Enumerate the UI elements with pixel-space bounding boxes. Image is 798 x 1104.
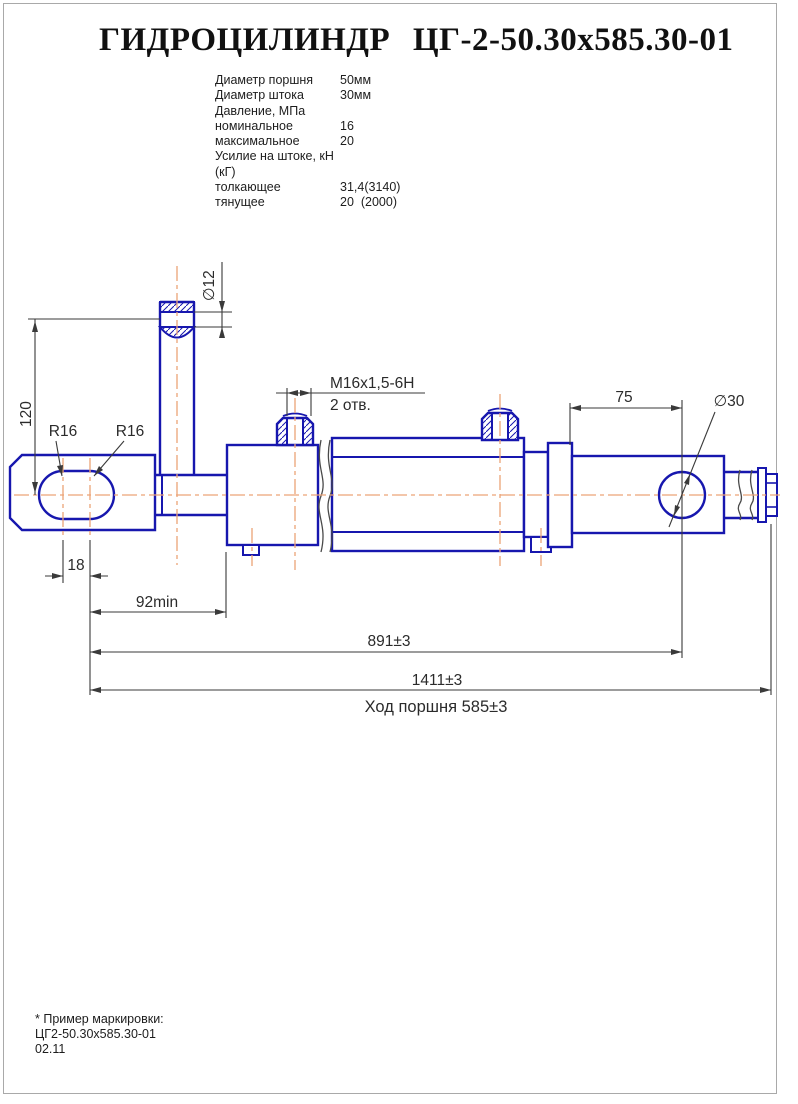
front-head (227, 445, 318, 555)
tube-break-line-left (319, 440, 323, 552)
marking-example-title: * Пример маркировки: (35, 1012, 164, 1027)
min-clearance-label: 92min (136, 594, 178, 611)
port-thread-label: M16x1,5-6H (330, 375, 414, 392)
pin-hole-diameter-label: ∅12 (201, 270, 218, 301)
marking-example-code: ЦГ2-50.30х585.30-01 (35, 1027, 164, 1042)
pin-height-label: 120 (18, 401, 35, 427)
mount-length-label: 891±3 (368, 633, 411, 650)
slot-radius-right-label: R16 (116, 423, 144, 440)
rod-eye (10, 455, 155, 530)
front-head-bottom-boss (243, 545, 259, 555)
rod-end-offset-label: 75 (615, 389, 632, 406)
overall-length-label: 1411±3 (412, 672, 462, 689)
cylinder-drawing: ∅12 120 R16 R16 M16x1,5-6H 2 отв. 75 ∅30… (0, 0, 798, 1104)
eye-hole-diameter-label: ∅30 (714, 393, 745, 410)
port-holes-count-label: 2 отв. (330, 397, 371, 414)
marking-example-date: 02.11 (35, 1042, 164, 1057)
slot-radius-left-label: R16 (49, 423, 77, 440)
slot-center-distance-label: 18 (67, 557, 84, 574)
drawing-sheet: ГИДРОЦИЛИНДР ЦГ-2-50.30х585.30-01 Диамет… (0, 0, 798, 1104)
marking-example-note: * Пример маркировки: ЦГ2-50.30х585.30-01… (35, 1012, 164, 1057)
piston-stroke-label: Ход поршня 585±3 (365, 698, 508, 716)
